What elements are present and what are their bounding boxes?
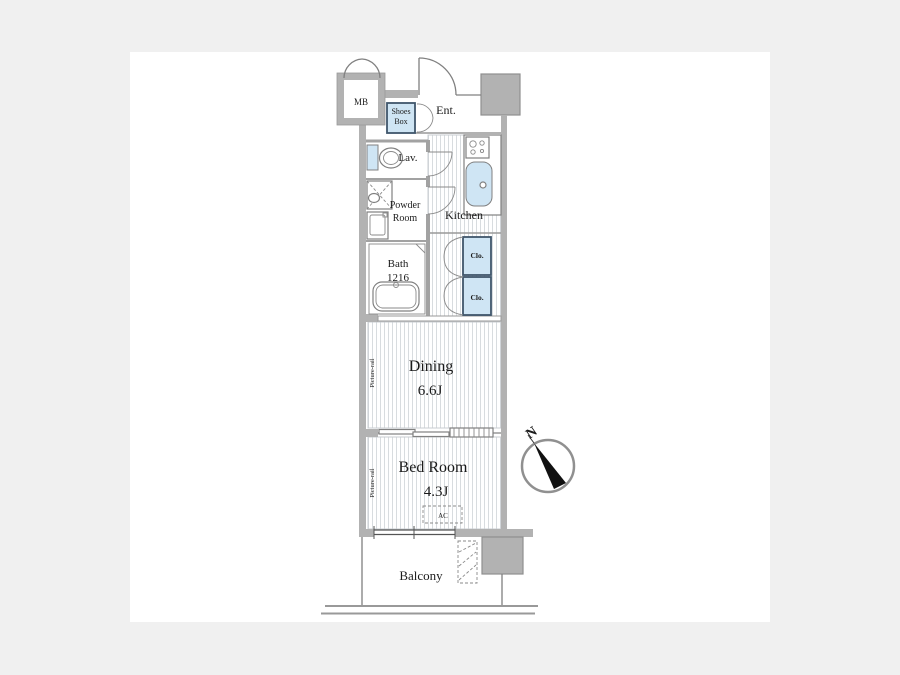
bedroom-size-label: 4.3J (424, 484, 449, 500)
left-wall (359, 122, 366, 537)
floorplan-drawing: MB Ent. Shoes Box Lav. (0, 0, 900, 675)
bathtub-icon (373, 282, 419, 311)
stove-icon (466, 137, 489, 158)
closet-lower-label: Clo. (470, 293, 483, 302)
dining-size-label: 6.6J (418, 383, 443, 399)
bath-label-line1: Bath (388, 258, 409, 270)
dining-top-wall (378, 316, 501, 321)
partition-wall-stub (359, 429, 378, 437)
shoes-box-label-line1: Shoes (391, 107, 410, 116)
bottom-wall-left (359, 529, 374, 537)
top-right-pillar (481, 74, 520, 115)
top-wall (380, 90, 418, 98)
closet-upper-label: Clo. (470, 251, 483, 260)
ac-label: AC (438, 512, 448, 520)
powder-room-label-line1: Powder (390, 200, 421, 211)
balcony-label: Balcony (399, 568, 443, 583)
sink-drain-icon (480, 182, 486, 188)
sliding-panel1 (379, 430, 415, 435)
dining-label: Dining (409, 358, 453, 375)
bottom-wall-right (455, 529, 533, 537)
bedroom-label: Bed Room (399, 459, 468, 476)
floorplan-page: MB Ent. Shoes Box Lav. (0, 0, 900, 675)
right-wall (501, 115, 507, 530)
kitchen-sink-icon (466, 162, 492, 206)
bedroom-floor (368, 437, 501, 529)
entrance-label: Ent. (436, 103, 456, 117)
meter-box-label: MB (354, 97, 368, 107)
shoes-box-label-line2: Box (394, 117, 407, 126)
washbasin-icon (369, 194, 380, 203)
picture-rail-bedroom-label: Picture-rail (369, 468, 376, 497)
kitchen-label: Kitchen (445, 208, 483, 222)
bath-label-line2: 1216 (387, 272, 410, 284)
sliding-panel2 (413, 432, 449, 437)
partition-hatch-box (450, 428, 493, 437)
dining-floor (368, 322, 501, 428)
bottom-right-pillar (482, 537, 523, 574)
toilet-tank-icon (367, 145, 378, 170)
lavatory-label: Lav. (398, 152, 417, 164)
powder-room-label-line2: Room (393, 213, 418, 224)
picture-rail-dining-label: Picture-rail (369, 358, 376, 387)
bath-wall-stub (359, 314, 378, 322)
